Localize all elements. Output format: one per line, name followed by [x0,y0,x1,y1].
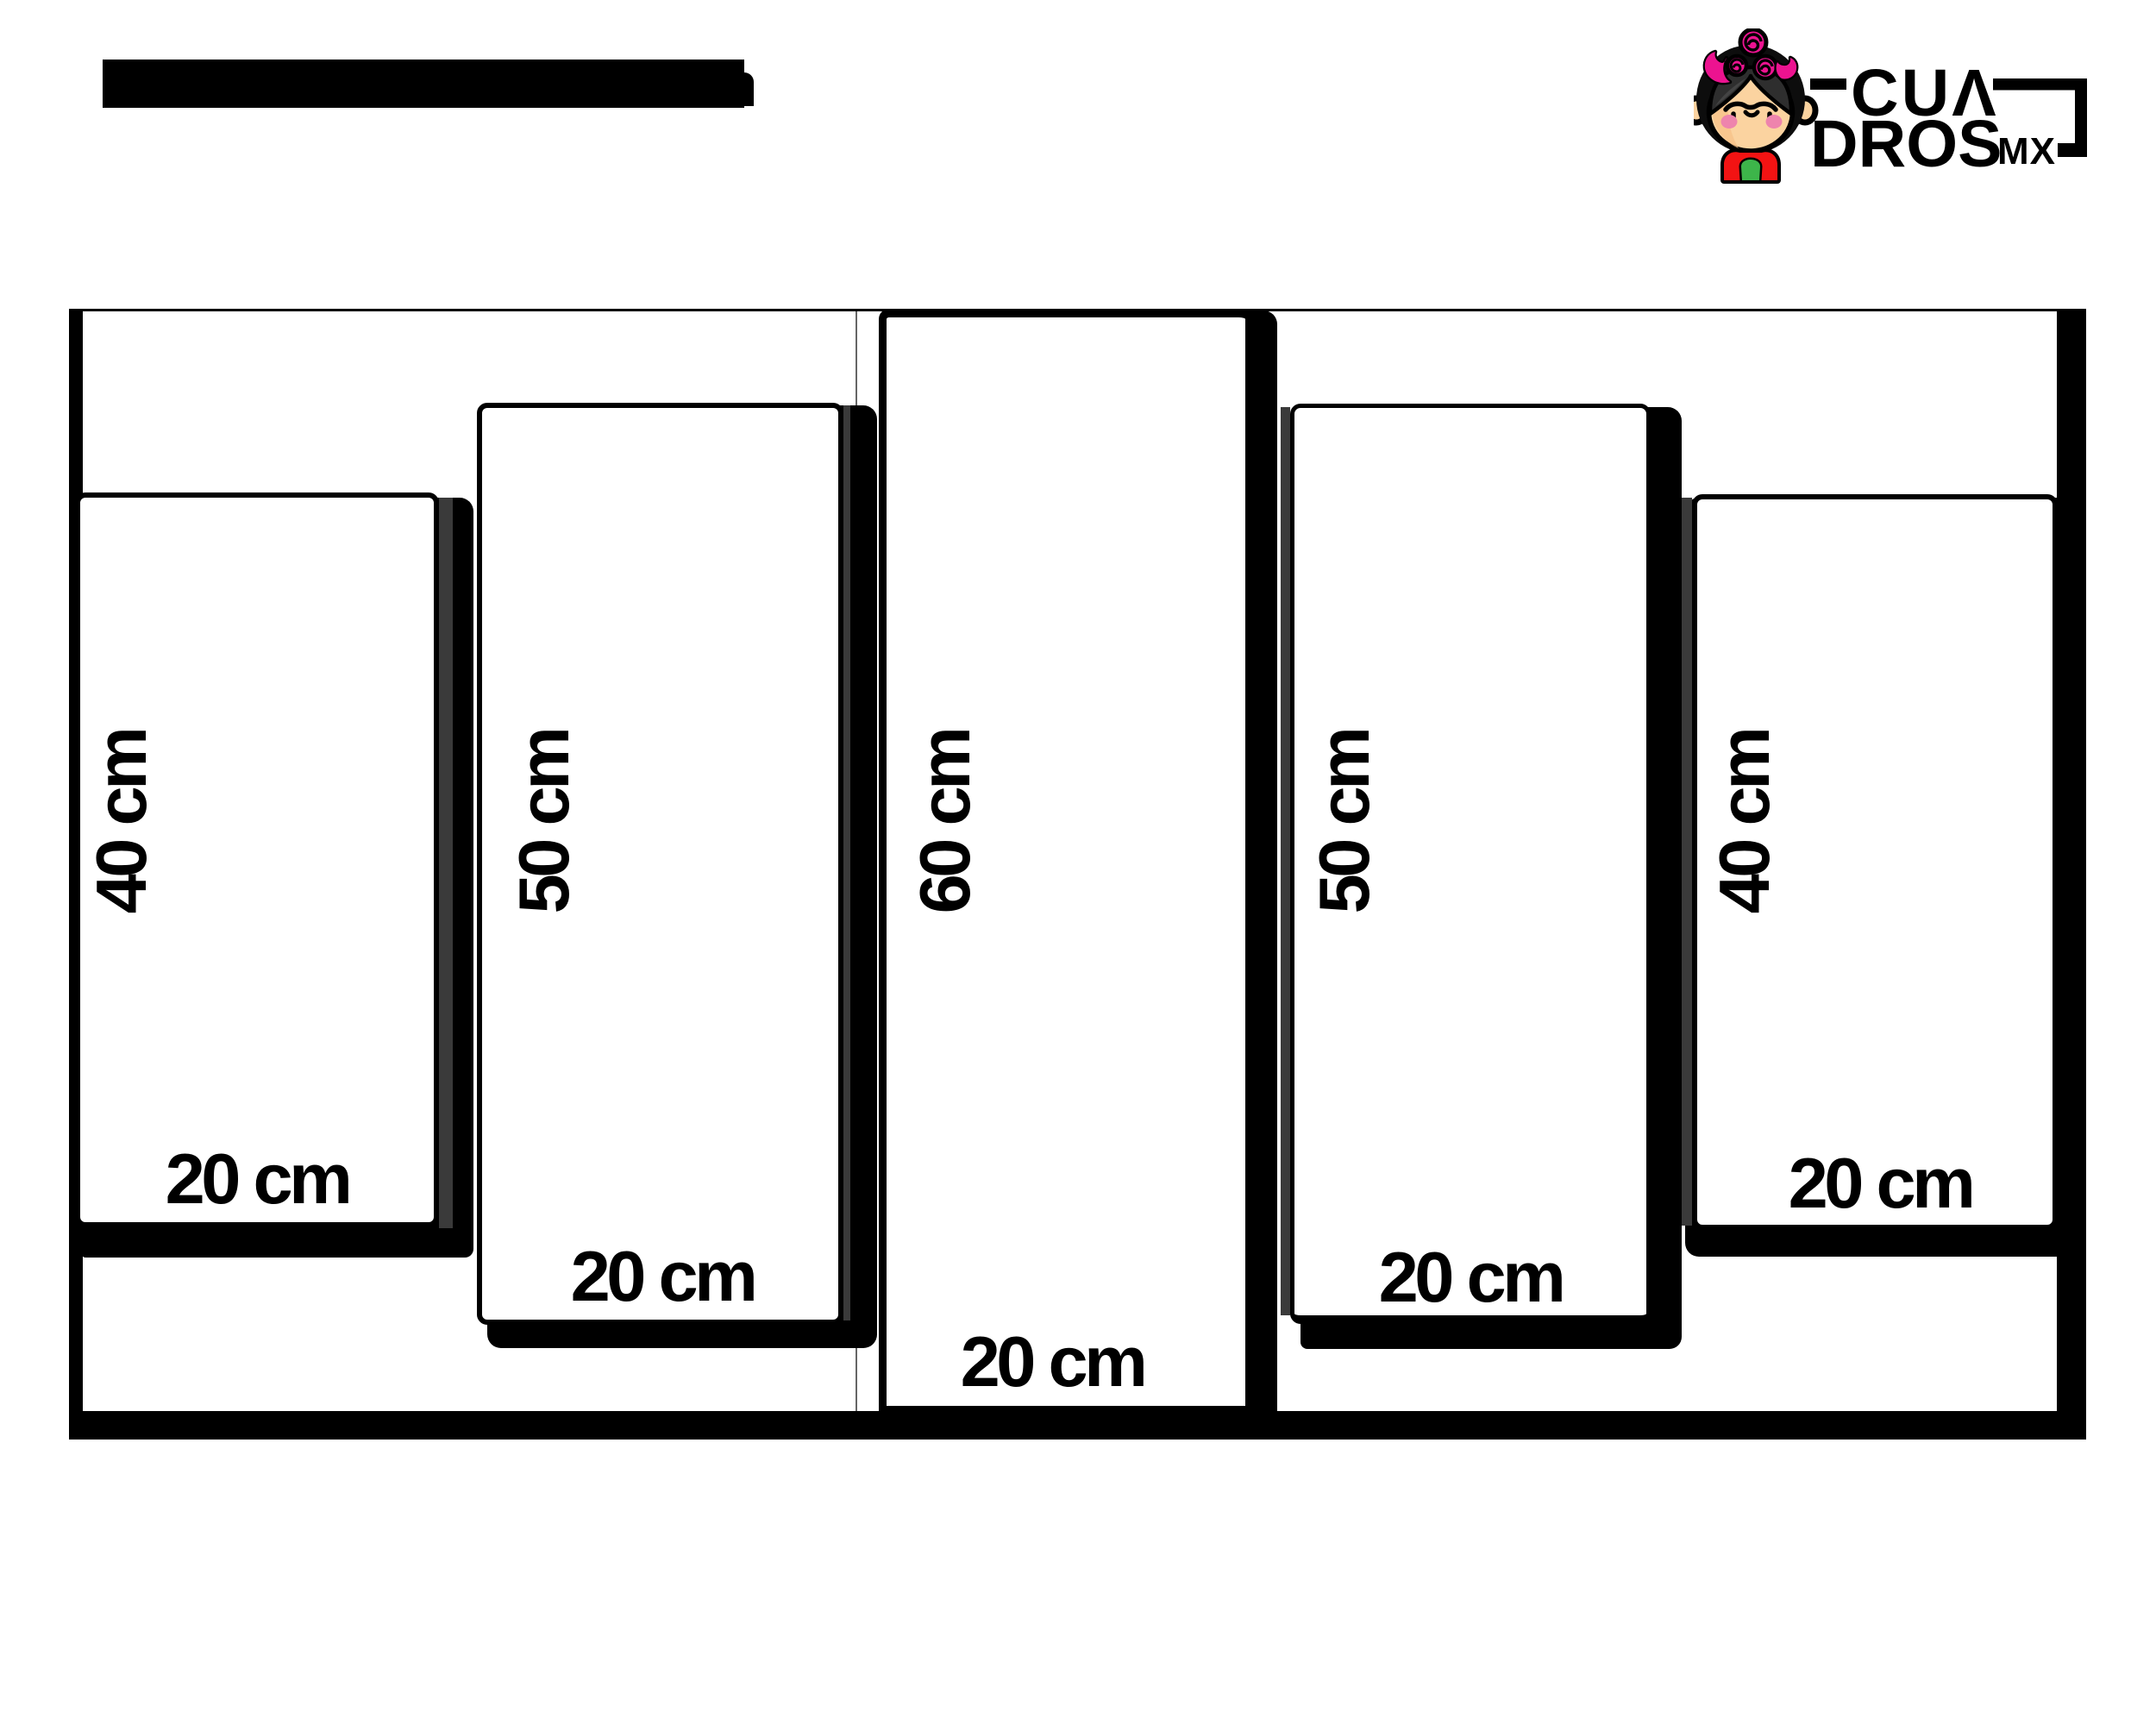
svg-text:DROS: DROS [1810,107,2002,181]
svg-text:MX: MX [1997,130,2056,172]
